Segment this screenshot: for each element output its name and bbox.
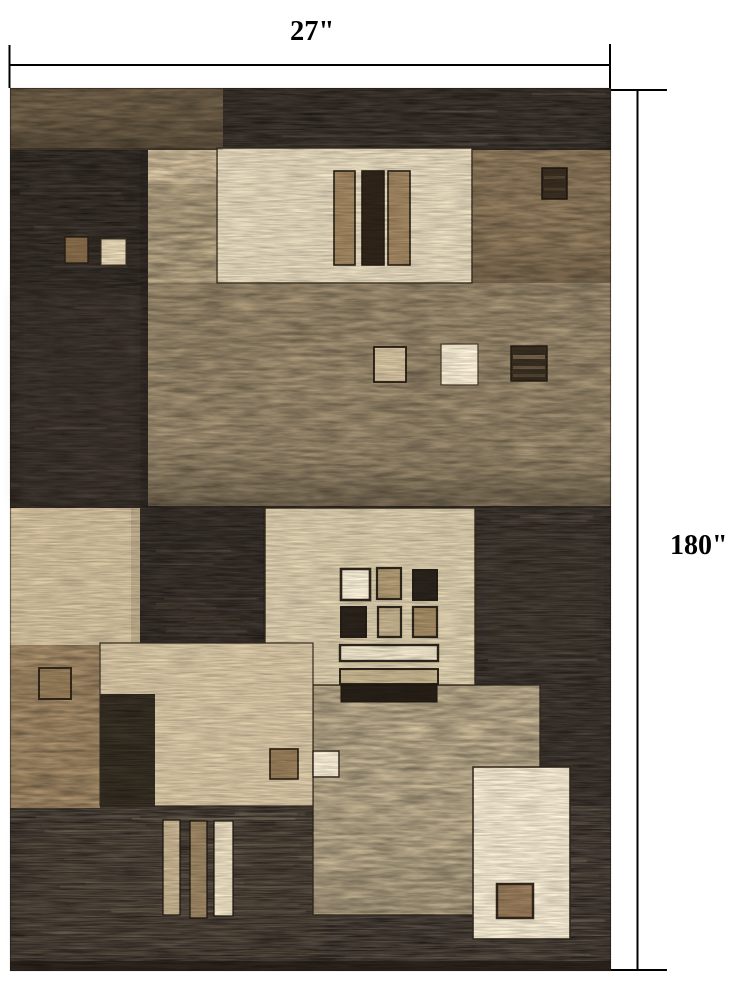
svg-text:27": 27" — [290, 16, 334, 47]
svg-text:180": 180" — [670, 530, 728, 561]
